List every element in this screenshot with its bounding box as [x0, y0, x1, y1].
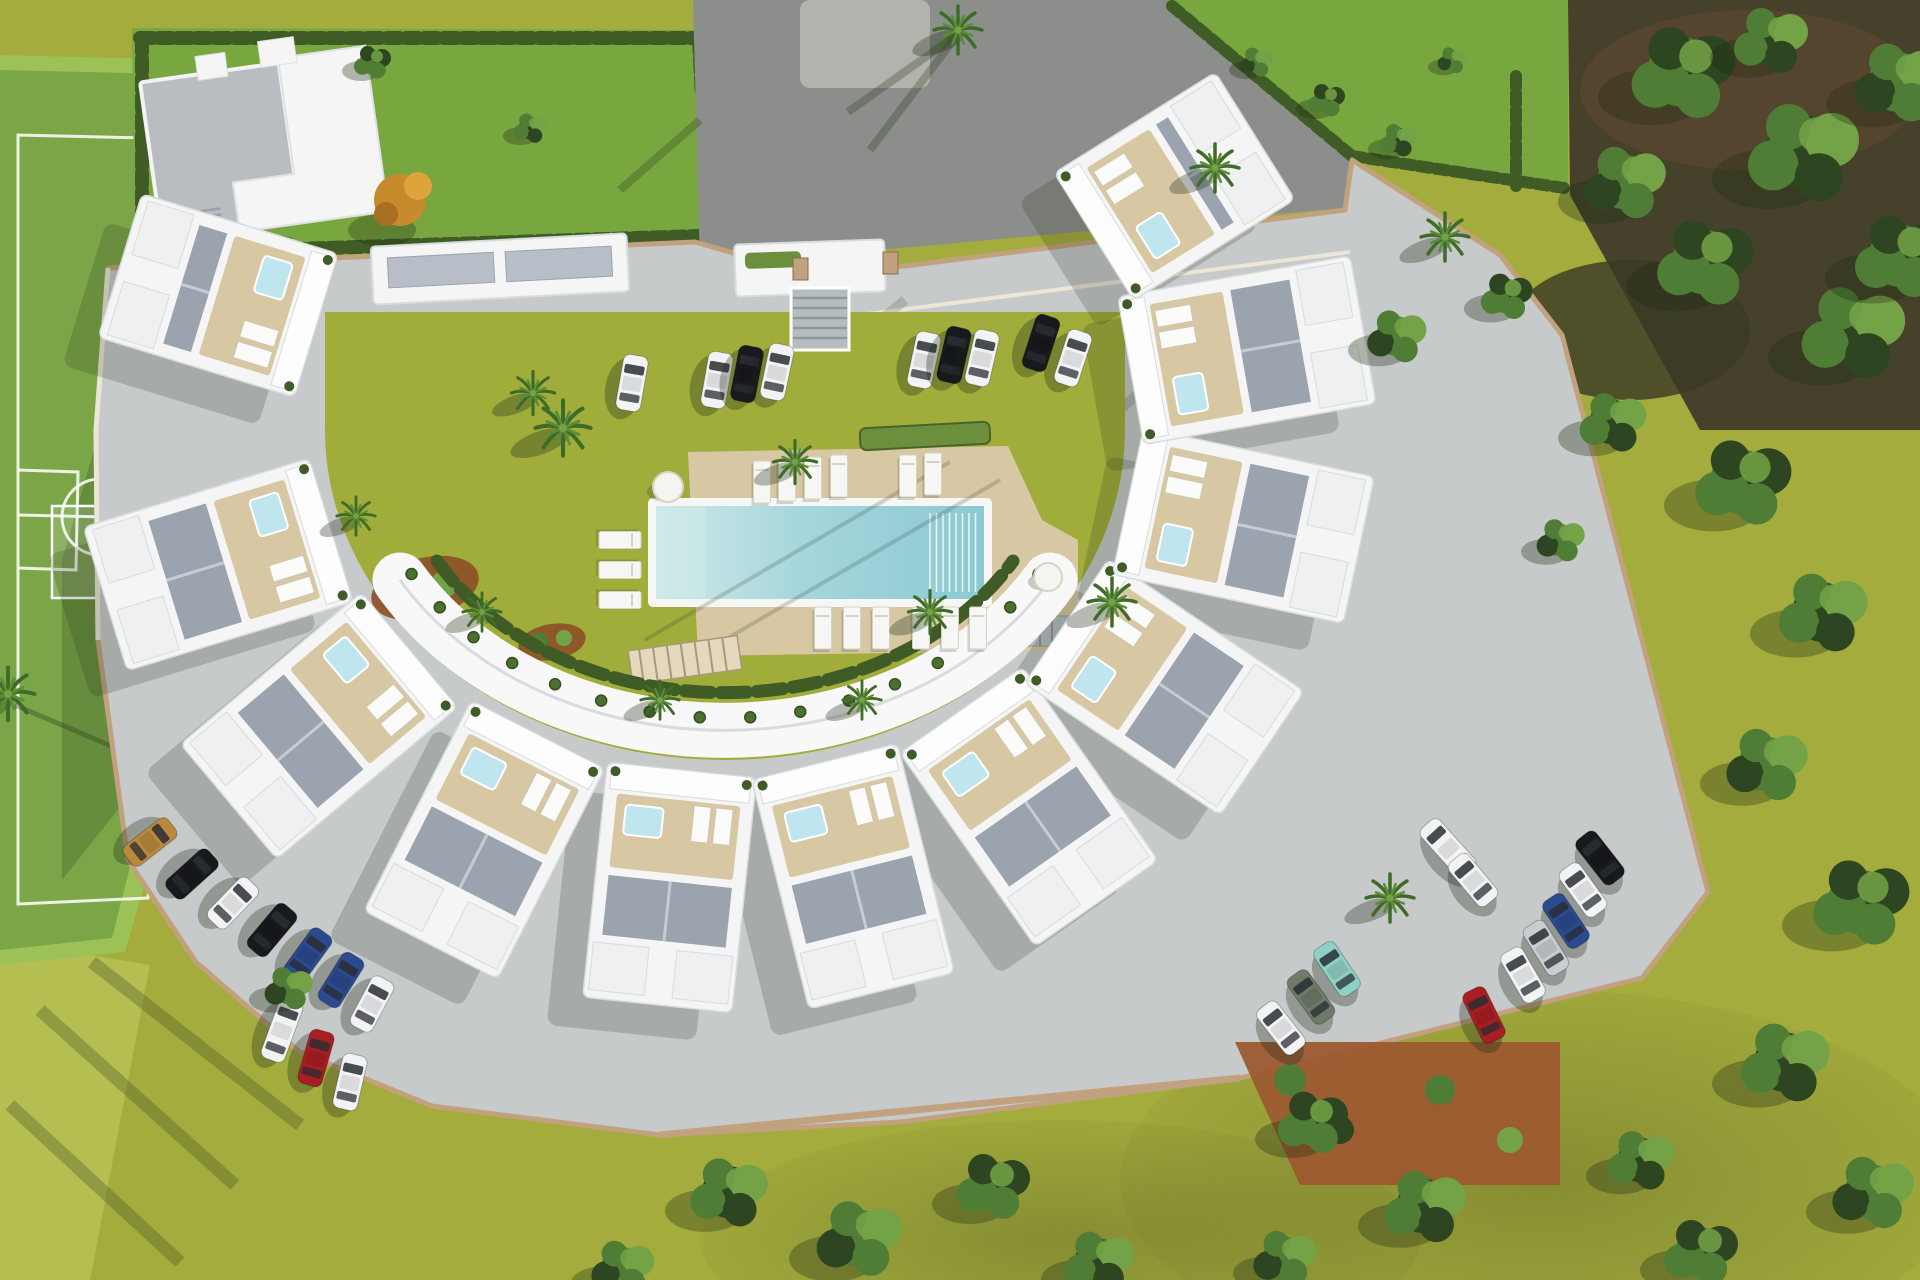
planter [596, 695, 607, 706]
tree-highlight [1096, 1240, 1119, 1263]
apartment-block [583, 762, 757, 1012]
tree-highlight [1701, 232, 1732, 263]
screenshot-root [0, 0, 1920, 1280]
round-table [1034, 563, 1062, 591]
tree-canopy [1816, 613, 1854, 651]
tree-highlight [1422, 1180, 1448, 1206]
tree-highlight [1325, 88, 1337, 100]
lounger-bed [970, 607, 987, 649]
tree-canopy [1396, 140, 1412, 156]
tree-canopy [1254, 62, 1268, 76]
tree-highlight [1638, 1139, 1660, 1161]
tree-highlight [1255, 52, 1266, 63]
planter [745, 712, 756, 723]
tree-highlight [1782, 1034, 1811, 1063]
tree-canopy [1854, 903, 1896, 945]
roof-box [588, 942, 649, 996]
palm-crown [1109, 599, 1116, 606]
lounger [803, 457, 822, 502]
tree-highlight [529, 118, 540, 129]
tree-highlight [620, 1248, 640, 1268]
planter [434, 602, 445, 613]
lounger-bed [900, 455, 917, 497]
tree-canopy [852, 1239, 889, 1276]
tree-canopy [1503, 297, 1525, 319]
tree-highlight [1820, 584, 1849, 613]
lounger-bed [925, 453, 942, 495]
tree-highlight [1310, 1100, 1333, 1123]
lounger [813, 607, 832, 652]
planter [889, 679, 900, 690]
tree-canopy [1636, 1161, 1665, 1190]
tree-canopy [1419, 1207, 1454, 1242]
round-table [653, 472, 683, 502]
lounger [871, 607, 890, 652]
lounger-bed [599, 562, 641, 579]
palm-crown [559, 424, 567, 432]
palm-crown [1442, 234, 1449, 241]
lounger [842, 607, 861, 652]
tree-canopy [285, 989, 306, 1010]
palm-crown [657, 697, 663, 703]
lounger [596, 590, 641, 609]
tree-highlight [990, 1163, 1014, 1187]
tree-canopy [1392, 337, 1418, 363]
tree-highlight [1849, 300, 1883, 334]
lounger-bed [873, 607, 890, 649]
planter [932, 657, 943, 668]
lounger-bed [844, 607, 861, 649]
roof-box [672, 951, 733, 1005]
bed-bush [556, 630, 572, 646]
tree-highlight [371, 50, 383, 62]
tree-canopy [1450, 60, 1463, 73]
lounger [596, 560, 641, 579]
tree-highlight [1394, 317, 1413, 336]
terrace-lounger [691, 806, 712, 844]
tree-canopy [1736, 483, 1778, 525]
villa-roofbox [258, 37, 297, 68]
lounger-bed [805, 457, 822, 499]
tree-highlight [1870, 1166, 1896, 1192]
pool-shallow-step [658, 508, 706, 597]
tree-highlight [726, 1168, 751, 1193]
tree-canopy [1845, 333, 1890, 378]
jacuzzi [1156, 523, 1193, 566]
planter [795, 706, 806, 717]
gate-pillar [883, 252, 898, 274]
tree-canopy [723, 1193, 757, 1227]
garage-building [371, 233, 630, 304]
tree-canopy [1778, 1063, 1816, 1101]
palm-crown [955, 27, 962, 34]
jacuzzi [1173, 372, 1209, 415]
road-concrete-apron [800, 0, 930, 88]
tree-canopy [370, 62, 386, 78]
tree-highlight [1397, 128, 1409, 140]
lounger [923, 453, 942, 498]
tree-highlight [1282, 1238, 1302, 1258]
lounger [898, 455, 917, 500]
tree-canopy [1761, 765, 1796, 800]
palm-crown [859, 697, 865, 703]
palm-crown [353, 513, 359, 519]
villa-roofbox [195, 52, 228, 80]
tree-canopy [987, 1187, 1019, 1219]
lounger-bed [815, 607, 832, 649]
tree-highlight [1764, 738, 1790, 764]
tree-canopy [1324, 100, 1340, 116]
tree-highlight [1679, 40, 1713, 74]
tree-canopy [1698, 263, 1740, 305]
tree-canopy [1765, 41, 1797, 73]
palm-crown [1387, 895, 1394, 902]
tree-canopy [1867, 1193, 1902, 1228]
tree-highlight [1768, 17, 1792, 41]
lounger [829, 455, 848, 500]
tree-highlight [856, 1211, 884, 1239]
lounger-bed [599, 532, 641, 549]
lounger [968, 607, 987, 652]
planter [694, 712, 705, 723]
tree-canopy [528, 128, 542, 142]
tree-highlight [1451, 51, 1461, 61]
palm-crown [927, 609, 933, 615]
roof-box [1296, 262, 1353, 325]
planter [406, 569, 417, 580]
palm-crown [4, 690, 12, 698]
gate-pillar [793, 258, 808, 280]
lounger-bed [831, 455, 848, 497]
planter [468, 632, 479, 643]
lounger-bed [599, 592, 641, 609]
tree-highlight [1622, 156, 1648, 182]
planter [507, 657, 518, 668]
entry-stairs [791, 288, 849, 350]
tree-highlight [1799, 117, 1835, 153]
palm-crown [792, 459, 798, 465]
tree-highlight [1698, 1229, 1722, 1253]
tree-highlight [1857, 872, 1888, 903]
tree-canopy [1795, 153, 1843, 201]
lounger [596, 530, 641, 549]
tree-canopy [1619, 183, 1654, 218]
palm-crown [479, 609, 485, 615]
terrace-lounger [712, 808, 733, 846]
tree-canopy [1608, 423, 1637, 452]
planter [1005, 602, 1016, 613]
tree-highlight [1610, 401, 1632, 423]
tree-canopy [1307, 1123, 1337, 1153]
lounger [940, 607, 959, 652]
tree-canopy [1557, 541, 1578, 562]
tree-highlight [1505, 280, 1522, 297]
tree-canopy [1675, 73, 1720, 118]
planter [550, 679, 561, 690]
palm-crown [1212, 165, 1219, 172]
palm-crown [530, 390, 536, 396]
tree-highlight [1739, 452, 1770, 483]
tree-highlight [287, 973, 303, 989]
jacuzzi [623, 804, 664, 838]
tree-highlight [1559, 525, 1575, 541]
aerial-render [0, 0, 1920, 1280]
